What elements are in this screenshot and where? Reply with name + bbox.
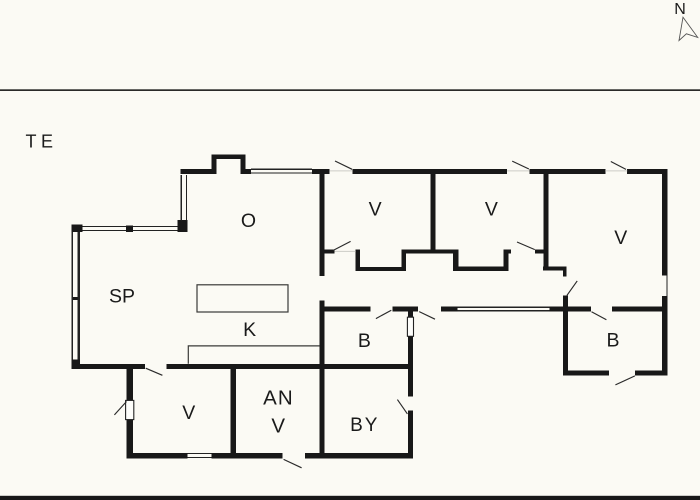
svg-text:V: V (271, 414, 285, 437)
svg-text:AN: AN (263, 387, 293, 410)
svg-text:O: O (241, 210, 256, 232)
svg-text:K: K (243, 319, 256, 341)
svg-text:SP: SP (109, 285, 135, 307)
svg-text:B: B (606, 329, 619, 351)
svg-text:TE: TE (26, 132, 58, 152)
svg-text:V: V (182, 402, 195, 424)
svg-text:B: B (358, 330, 371, 352)
svg-text:V: V (369, 199, 382, 221)
svg-text:N: N (674, 1, 686, 18)
svg-text:V: V (485, 199, 498, 221)
svg-text:V: V (614, 227, 627, 249)
svg-text:BY: BY (350, 415, 379, 436)
